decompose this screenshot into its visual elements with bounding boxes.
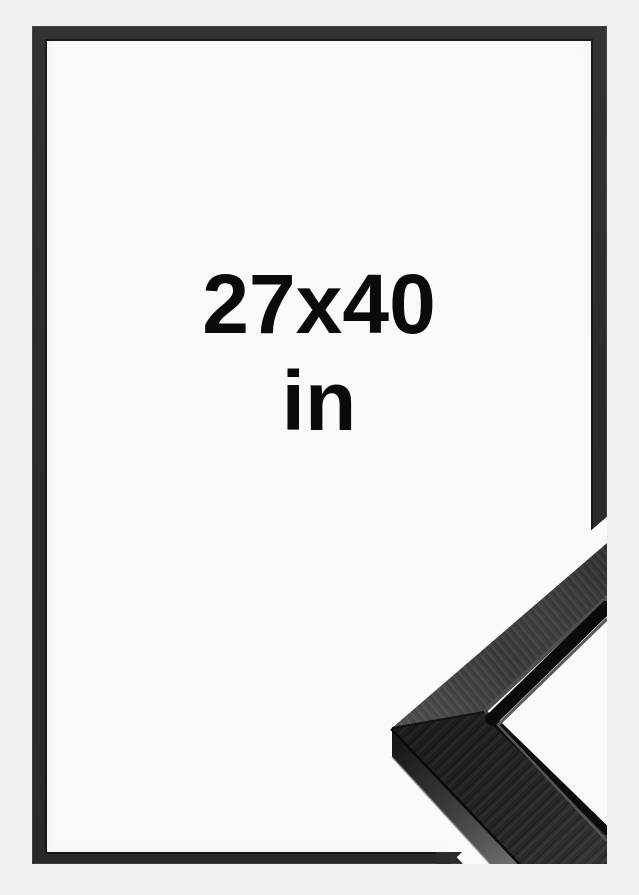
size-label: 27x40 in — [47, 256, 591, 450]
size-value: 27x40 — [47, 256, 591, 353]
product-image: 27x40 in — [0, 0, 639, 895]
size-unit: in — [47, 353, 591, 450]
